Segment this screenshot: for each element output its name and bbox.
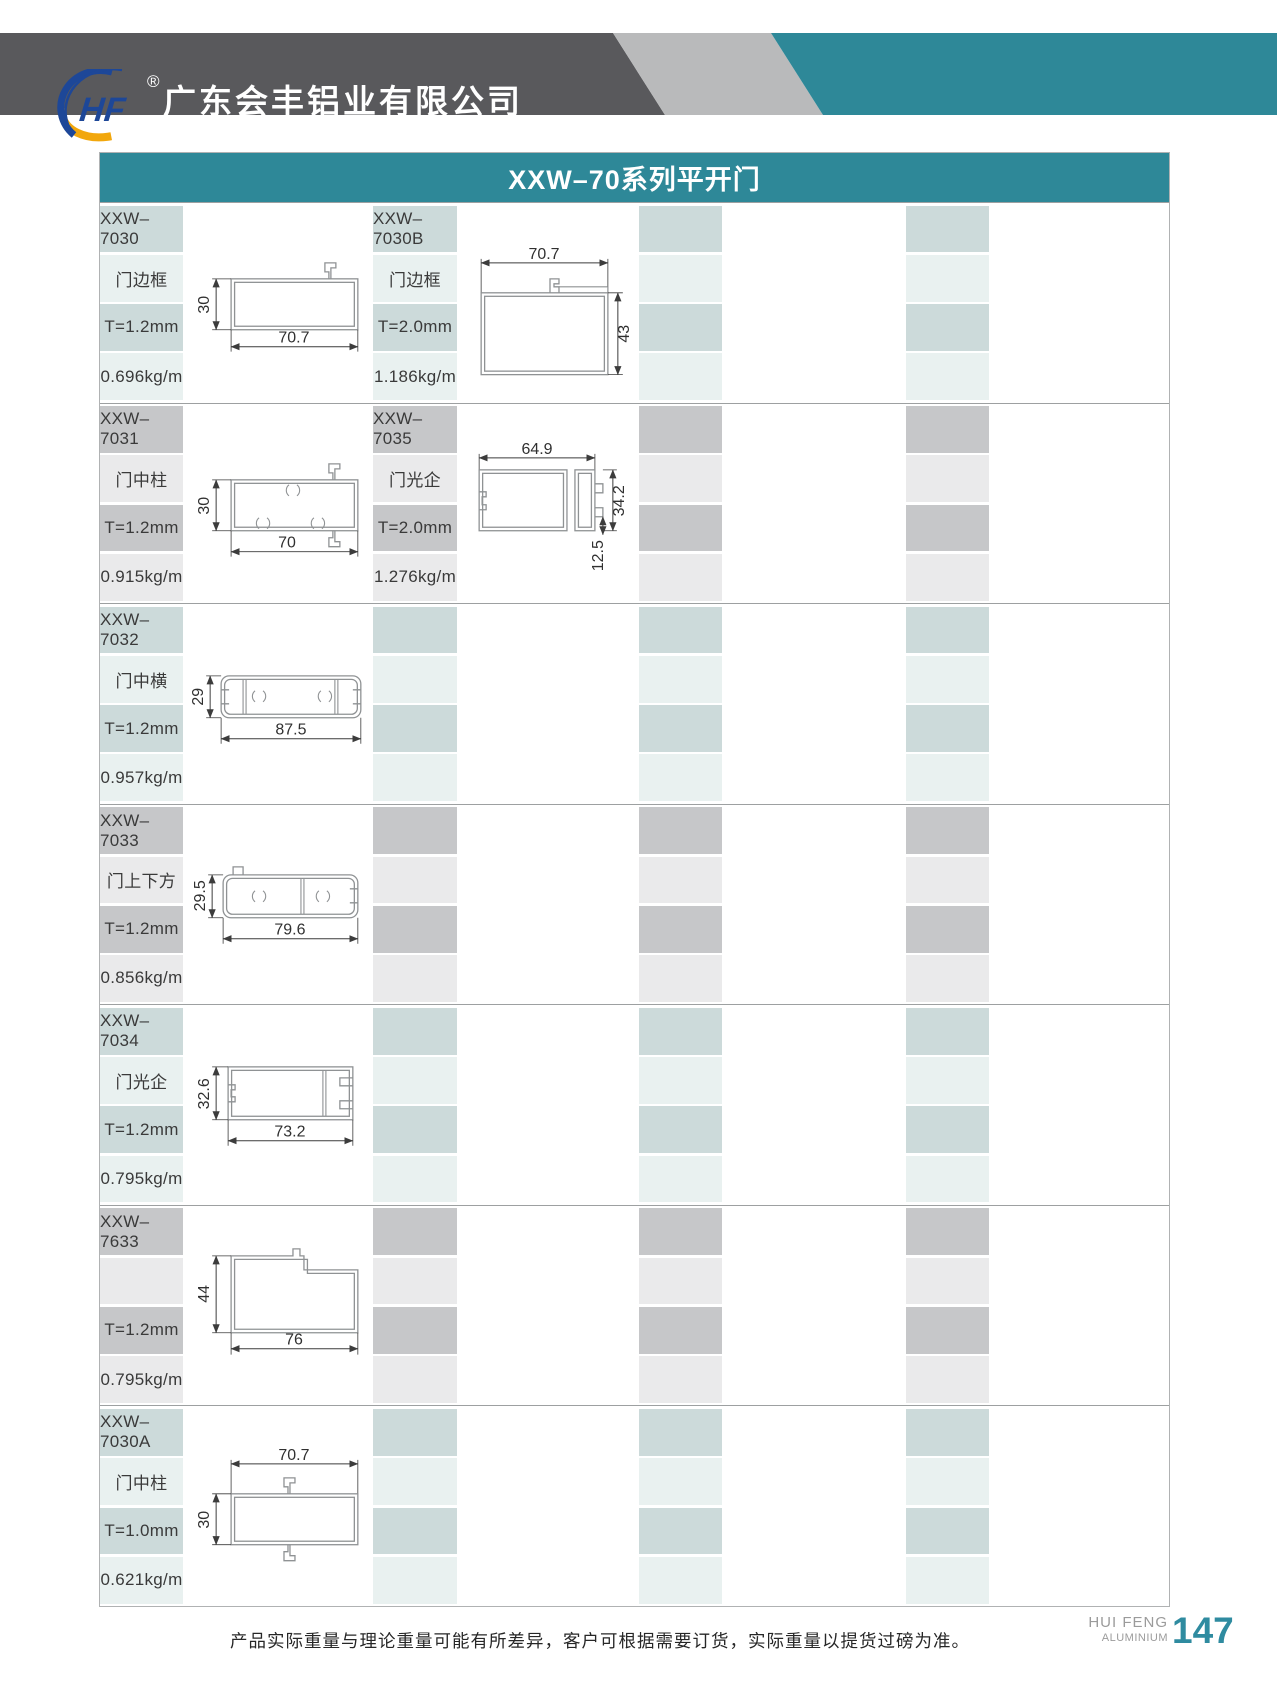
label-column-empty [906, 1005, 989, 1205]
empty-cell [906, 1508, 989, 1555]
product-weight: 1.276kg/m [373, 554, 457, 601]
drawing-cell-empty [457, 604, 639, 804]
product-code: XXW–7633 [100, 1208, 183, 1255]
product-code: XXW–7030A [100, 1409, 183, 1456]
dimension-label: 34.2 [611, 485, 628, 516]
empty-cell [906, 807, 989, 854]
empty-cell [639, 705, 722, 752]
drawing-cell-empty [722, 1206, 906, 1406]
empty-cell [906, 857, 989, 904]
empty-cell [639, 1057, 722, 1104]
drawing-cell-empty [722, 604, 906, 804]
empty-cell [639, 906, 722, 953]
empty-cell [639, 304, 722, 351]
empty-cell [373, 1409, 457, 1456]
drawing-cell-empty [457, 805, 639, 1005]
empty-cell [639, 206, 722, 253]
product-code: XXW–7034 [100, 1008, 183, 1055]
product-thickness: T=1.2mm [100, 906, 183, 953]
label-column-empty [373, 1406, 457, 1606]
product-name: 门边框 [373, 255, 457, 302]
empty-cell [373, 1508, 457, 1555]
product-name: 门光企 [373, 455, 457, 502]
dimension-label: 64.9 [521, 440, 552, 457]
empty-cell [906, 353, 989, 400]
footer-brand-line2: ALUMINIUM [1040, 1632, 1168, 1644]
label-column-empty [906, 604, 989, 804]
product-name: 门中柱 [100, 1458, 183, 1505]
empty-cell [906, 1057, 989, 1104]
drawing-cell: 70.7 30 [183, 1406, 373, 1606]
empty-cell [906, 1409, 989, 1456]
product-weight: 0.795kg/m [100, 1356, 183, 1403]
empty-cell [639, 1307, 722, 1354]
profile-drawing-xxw-7030b: 70.7 43 [457, 203, 639, 403]
product-code: XXW–7030 [100, 206, 183, 253]
profile-drawing-xxw-7030: 30 70.7 [183, 203, 373, 403]
label-column-empty [373, 1005, 457, 1205]
empty-cell [373, 1557, 457, 1604]
company-name-en: GUANGDONG HUIFENG ALUMINIUM.,LTD. [164, 115, 559, 137]
product-code: XXW–7033 [100, 807, 183, 854]
empty-cell [373, 656, 457, 703]
product-thickness: T=1.0mm [100, 1508, 183, 1555]
drawing-cell: 70.7 43 [457, 203, 639, 403]
product-name: 门边框 [100, 255, 183, 302]
dimension-label: 70.7 [528, 246, 559, 263]
drawing-cell-empty [989, 404, 1169, 604]
empty-cell [906, 1258, 989, 1305]
drawing-cell-empty [722, 1005, 906, 1205]
huifeng-logo-icon: HF ® [52, 69, 162, 145]
empty-cell [906, 1307, 989, 1354]
empty-cell [373, 906, 457, 953]
drawing-cell: 64.9 34.2 12.5 [457, 404, 639, 604]
table-title: XXW–70系列平开门 [100, 153, 1169, 202]
empty-cell [639, 656, 722, 703]
dimension-label: 70.7 [278, 330, 309, 347]
empty-cell [373, 1458, 457, 1505]
empty-cell [639, 406, 722, 453]
empty-cell [906, 705, 989, 752]
label-column-empty [639, 404, 722, 604]
profile-drawing-xxw-7031: 30 70 [183, 404, 373, 604]
drawing-cell-empty [722, 805, 906, 1005]
product-row-xxw-7030: XXW–7030门边框T=1.2mm0.696kg/m 30 70.7 X [100, 202, 1169, 403]
empty-cell [906, 554, 989, 601]
dimension-label: 70.7 [278, 1447, 309, 1464]
profile-drawing-xxw-7633: 44 76 [183, 1206, 373, 1406]
dimension-label: 32.6 [196, 1078, 213, 1109]
dimension-label: 87.5 [275, 722, 306, 739]
empty-cell [373, 1208, 457, 1255]
profile-table: XXW–70系列平开门 XXW–7030门边框T=1.2mm0.696kg/m … [99, 152, 1170, 1607]
drawing-cell: 29.5 79.6 [183, 805, 373, 1005]
empty-cell [639, 607, 722, 654]
product-weight: 0.696kg/m [100, 353, 183, 400]
empty-cell [906, 656, 989, 703]
empty-cell [906, 906, 989, 953]
empty-cell [906, 505, 989, 552]
dimension-label: 12.5 [590, 540, 607, 571]
footer-brand: HUI FENG ALUMINIUM [1040, 1615, 1168, 1644]
svg-text:HF: HF [78, 91, 128, 129]
label-column: XXW–7032门中横T=1.2mm0.957kg/m [100, 604, 183, 804]
drawing-cell-empty [989, 604, 1169, 804]
empty-cell [906, 955, 989, 1002]
drawing-cell-empty [457, 1406, 639, 1606]
empty-cell [639, 1458, 722, 1505]
empty-cell [639, 554, 722, 601]
catalog-page: HF ® 广东会丰铝业有限公司 GUANGDONG HUIFENG ALUMIN… [0, 0, 1277, 1683]
empty-cell [373, 705, 457, 752]
empty-cell [906, 1356, 989, 1403]
product-weight: 0.621kg/m [100, 1557, 183, 1604]
empty-cell [639, 1106, 722, 1153]
dimension-label: 44 [196, 1285, 213, 1303]
product-name [100, 1258, 183, 1305]
empty-cell [639, 1008, 722, 1055]
product-row-xxw-7633: XXW–7633T=1.2mm0.795kg/m 44 76 [100, 1205, 1169, 1406]
label-column: XXW–7633T=1.2mm0.795kg/m [100, 1206, 183, 1406]
drawing-cell-empty [722, 1406, 906, 1606]
label-column: XXW–7033门上下方T=1.2mm0.856kg/m [100, 805, 183, 1005]
product-row-xxw-7033: XXW–7033门上下方T=1.2mm0.856kg/m 29.5 [100, 804, 1169, 1005]
table-rows: XXW–7030门边框T=1.2mm0.696kg/m 30 70.7 X [100, 202, 1169, 1606]
empty-cell [639, 857, 722, 904]
label-column-empty [906, 1206, 989, 1406]
empty-cell [906, 1008, 989, 1055]
product-code: XXW–7035 [373, 406, 457, 453]
drawing-cell-empty [989, 203, 1169, 403]
empty-cell [639, 1409, 722, 1456]
drawing-cell-empty [457, 1005, 639, 1205]
product-thickness: T=1.2mm [100, 304, 183, 351]
drawing-cell: 30 70 [183, 404, 373, 604]
empty-cell [639, 1156, 722, 1203]
label-column-empty [639, 805, 722, 1005]
empty-cell [906, 1557, 989, 1604]
product-name: 门光企 [100, 1057, 183, 1104]
product-weight: 1.186kg/m [373, 353, 457, 400]
empty-cell [373, 955, 457, 1002]
empty-cell [373, 754, 457, 801]
empty-cell [639, 1208, 722, 1255]
label-column-empty [639, 203, 722, 403]
empty-cell [639, 1557, 722, 1604]
product-thickness: T=1.2mm [100, 1307, 183, 1354]
profile-drawing-xxw-7030a: 70.7 30 [183, 1406, 373, 1606]
label-column-empty [373, 604, 457, 804]
empty-cell [906, 1458, 989, 1505]
empty-cell [373, 1008, 457, 1055]
label-column-empty [906, 203, 989, 403]
product-weight: 0.915kg/m [100, 554, 183, 601]
empty-cell [639, 754, 722, 801]
label-column-empty [906, 1406, 989, 1606]
label-column-empty [373, 1206, 457, 1406]
dimension-label: 29.5 [192, 880, 209, 911]
empty-cell [639, 807, 722, 854]
empty-cell [906, 455, 989, 502]
drawing-cell: 44 76 [183, 1206, 373, 1406]
empty-cell [373, 1106, 457, 1153]
label-column: XXW–7035门光企T=2.0mm1.276kg/m [373, 404, 457, 604]
label-column: XXW–7030门边框T=1.2mm0.696kg/m [100, 203, 183, 403]
profile-drawing-xxw-7034: 32.6 73.2 [183, 1005, 373, 1205]
drawing-cell-empty [722, 404, 906, 604]
empty-cell [906, 1208, 989, 1255]
dimension-label: 73.2 [274, 1124, 305, 1141]
empty-cell [639, 1508, 722, 1555]
header-band: HF ® 广东会丰铝业有限公司 GUANGDONG HUIFENG ALUMIN… [0, 33, 1277, 115]
product-thickness: T=1.2mm [100, 505, 183, 552]
label-column: XXW–7030B门边框T=2.0mm1.186kg/m [373, 203, 457, 403]
empty-cell [639, 255, 722, 302]
page-number: 147 [1172, 1610, 1234, 1652]
empty-cell [906, 304, 989, 351]
footer-brand-line1: HUI FENG [1040, 1615, 1168, 1632]
empty-cell [373, 1258, 457, 1305]
dimension-label: 79.6 [274, 921, 305, 938]
empty-cell [906, 607, 989, 654]
product-name: 门上下方 [100, 857, 183, 904]
empty-cell [639, 955, 722, 1002]
dimension-label: 70 [278, 534, 296, 551]
empty-cell [906, 754, 989, 801]
drawing-cell: 32.6 73.2 [183, 1005, 373, 1205]
product-weight: 0.795kg/m [100, 1156, 183, 1203]
label-column-empty [639, 604, 722, 804]
dimension-label: 30 [196, 1511, 213, 1529]
empty-cell [373, 1356, 457, 1403]
profile-drawing-xxw-7035: 64.9 34.2 12.5 [457, 404, 639, 604]
label-column-empty [906, 805, 989, 1005]
drawing-cell-empty [989, 1206, 1169, 1406]
empty-cell [639, 1258, 722, 1305]
empty-cell [373, 1057, 457, 1104]
drawing-cell-empty [722, 203, 906, 403]
label-column-empty [639, 1206, 722, 1406]
product-thickness: T=1.2mm [100, 1106, 183, 1153]
product-row-xxw-7030a: XXW–7030A门中柱T=1.0mm0.621kg/m 70.7 30 [100, 1405, 1169, 1606]
empty-cell [373, 857, 457, 904]
product-thickness: T=2.0mm [373, 505, 457, 552]
product-row-xxw-7031: XXW–7031门中柱T=1.2mm0.915kg/m 30 [100, 403, 1169, 604]
product-name: 门中柱 [100, 455, 183, 502]
empty-cell [639, 505, 722, 552]
empty-cell [639, 1356, 722, 1403]
label-column: XXW–7034门光企T=1.2mm0.795kg/m [100, 1005, 183, 1205]
product-name: 门中横 [100, 656, 183, 703]
dimension-label: 30 [196, 296, 213, 314]
dimension-label: 43 [616, 325, 633, 343]
label-column: XXW–7031门中柱T=1.2mm0.915kg/m [100, 404, 183, 604]
drawing-cell-empty [457, 1206, 639, 1406]
empty-cell [906, 1156, 989, 1203]
drawing-cell-empty [989, 1005, 1169, 1205]
product-weight: 0.856kg/m [100, 955, 183, 1002]
registered-mark: ® [147, 72, 160, 91]
profile-drawing-xxw-7032: 29 87.5 [183, 604, 373, 804]
product-row-xxw-7032: XXW–7032门中横T=1.2mm0.957kg/m 29 [100, 603, 1169, 804]
empty-cell [906, 206, 989, 253]
label-column: XXW–7030A门中柱T=1.0mm0.621kg/m [100, 1406, 183, 1606]
product-row-xxw-7034: XXW–7034门光企T=1.2mm0.795kg/m 32.6 73.2 [100, 1004, 1169, 1205]
product-code: XXW–7032 [100, 607, 183, 654]
product-weight: 0.957kg/m [100, 754, 183, 801]
drawing-cell: 30 70.7 [183, 203, 373, 403]
dimension-label: 30 [196, 496, 213, 514]
empty-cell [639, 353, 722, 400]
product-code: XXW–7030B [373, 206, 457, 253]
label-column-empty [906, 404, 989, 604]
dimension-label: 76 [285, 1332, 303, 1349]
footer-note: 产品实际重量与理论重量可能有所差异，客户可根据需要订货，实际重量以提货过磅为准。 [0, 1628, 1200, 1653]
drawing-cell-empty [989, 805, 1169, 1005]
dimension-label: 29 [190, 688, 207, 706]
drawing-cell-empty [989, 1406, 1169, 1606]
label-column-empty [639, 1005, 722, 1205]
empty-cell [906, 255, 989, 302]
empty-cell [373, 807, 457, 854]
label-column-empty [373, 805, 457, 1005]
drawing-cell: 29 87.5 [183, 604, 373, 804]
product-thickness: T=2.0mm [373, 304, 457, 351]
label-column-empty [639, 1406, 722, 1606]
empty-cell [373, 1307, 457, 1354]
empty-cell [906, 1106, 989, 1153]
empty-cell [906, 406, 989, 453]
empty-cell [373, 1156, 457, 1203]
product-code: XXW–7031 [100, 406, 183, 453]
empty-cell [639, 455, 722, 502]
profile-drawing-xxw-7033: 29.5 79.6 [183, 805, 373, 1005]
product-thickness: T=1.2mm [100, 705, 183, 752]
empty-cell [373, 607, 457, 654]
